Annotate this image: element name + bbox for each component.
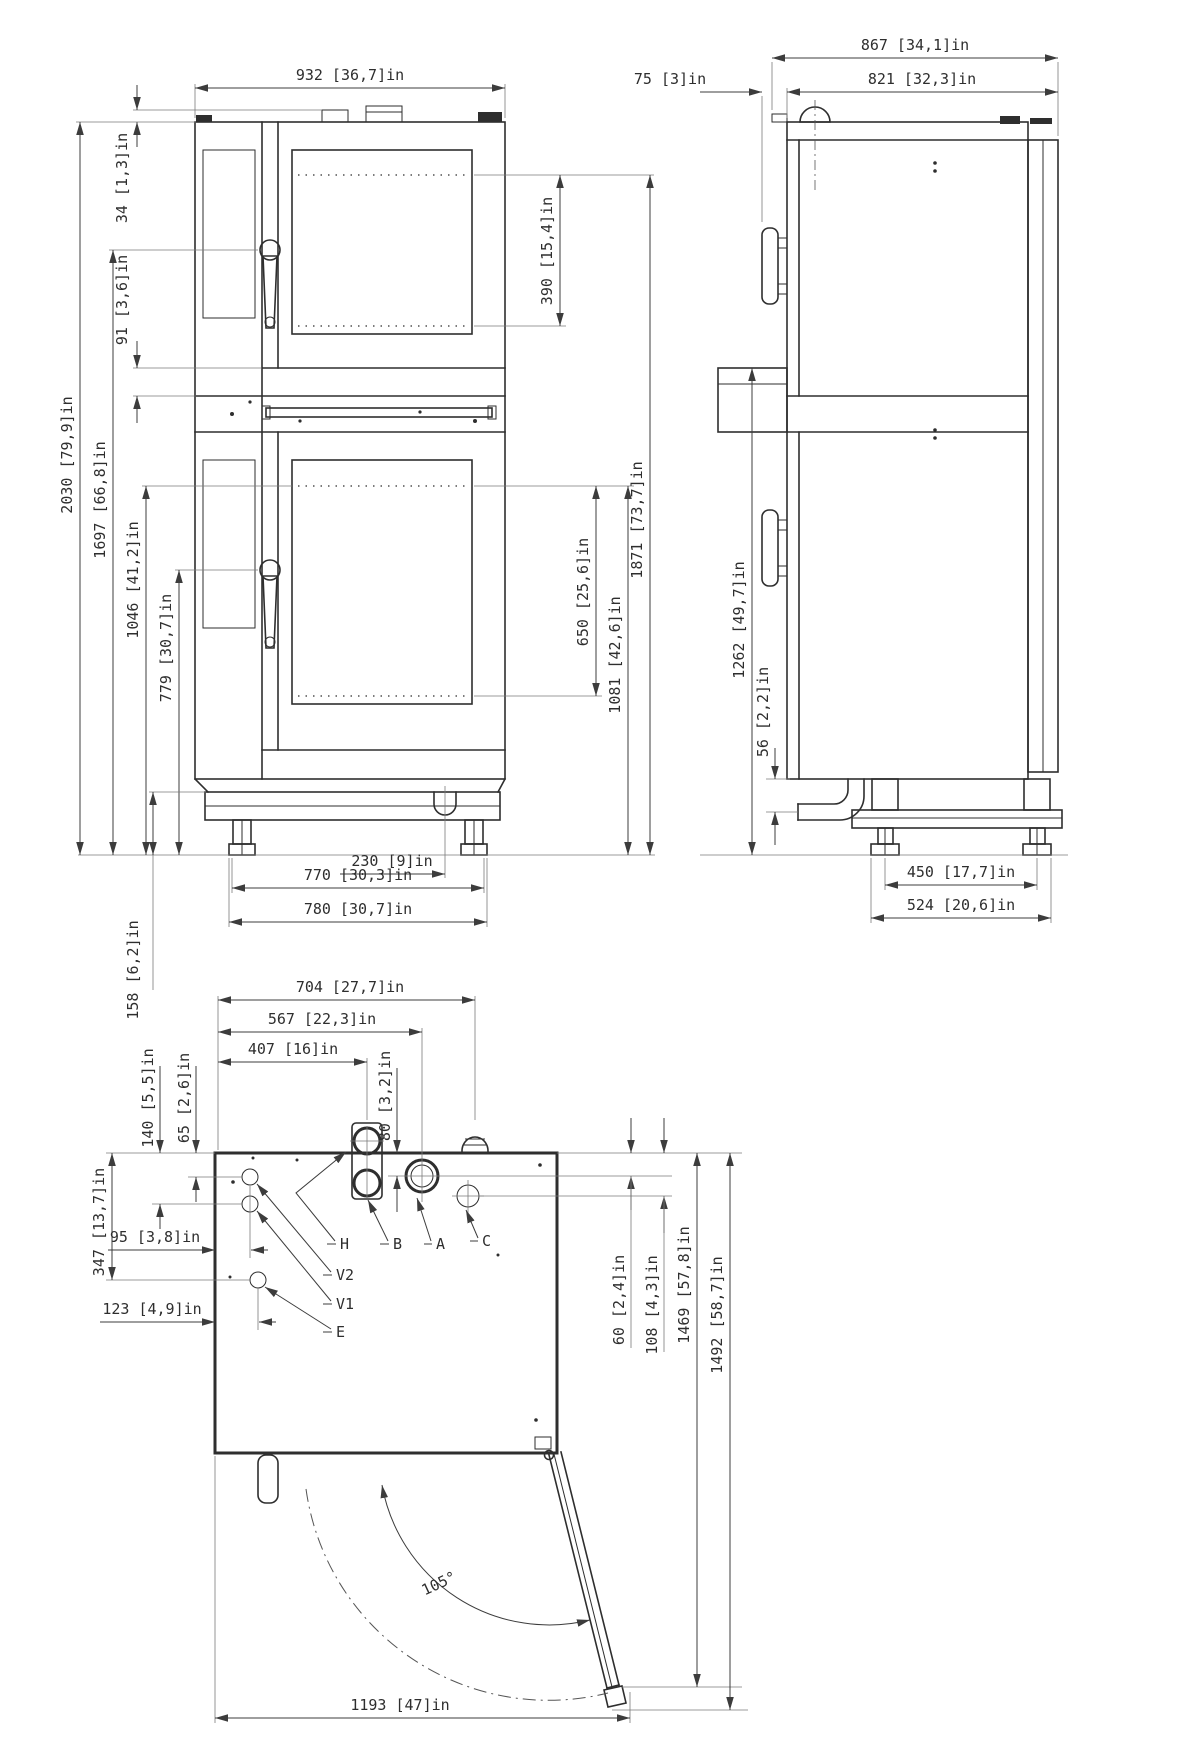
open-door-handle [604,1686,626,1707]
dim-front-1871: 1871 [73,7]in [628,175,650,855]
dim-label: 80 [3,2]in [376,1051,394,1141]
connection-label-V1: V1 [336,1295,354,1313]
dim-side-1262: 1262 [49,7]in [730,368,752,855]
dim-label: 779 [30,7]in [157,594,175,702]
dim-side-75: 75 [3]in [634,70,762,222]
dim-label: 1081 [42,6]in [606,596,624,713]
door-swing-arc [306,1489,608,1700]
connection-label-B: B [393,1235,402,1253]
dim-top-347: 347 [13,7]in [90,1153,112,1280]
upper-control-panel [203,150,255,318]
dim-label: 650 [25,6]in [574,538,592,646]
dim-side-450: 450 [17,7]in [885,858,1037,890]
dim-front-390: 390 [15,4]in [474,175,654,326]
dim-label: 1697 [66,8]in [91,441,109,558]
dim-label: 780 [30,7]in [304,900,412,918]
vent-dome [462,1137,488,1151]
dim-top-65: 65 [2,6]in [175,1053,196,1202]
dim-label: 770 [30,3]in [304,866,412,884]
connection-label-V2: V2 [336,1266,354,1284]
dim-top-140: 140 [5,5]in [139,1048,160,1229]
dim-label: 932 [36,7]in [296,66,404,84]
door-handle-top-view [258,1455,278,1503]
lower-door-window [292,460,472,704]
oven-dimension-drawing: 932 [36,7]in 34 [1,3]in 91 [3,6]in 2030 … [0,0,1200,1748]
connection-label-E: E [336,1323,345,1341]
dim-label: 65 [2,6]in [175,1053,193,1143]
dim-label: 123 [4,9]in [102,1300,201,1318]
upper-door-window [292,150,472,334]
open-door [549,1452,626,1707]
dim-top-108: 108 [4,3]in [643,1118,664,1355]
dim-label: 60 [2,4]in [610,1255,628,1345]
dim-label: 1193 [47]in [350,1696,449,1714]
side-beacon-vent [800,100,830,190]
top-view: 105° 704 [27,7]in 567 [22,3]in 407 [16]i… [90,978,748,1723]
dim-label: 704 [27,7]in [296,978,404,996]
side-view-body [772,114,1058,779]
dim-label: 407 [16]in [248,1040,338,1058]
dim-label: 56 [2,2]in [754,667,772,757]
dim-label: 1871 [73,7]in [628,461,646,578]
dim-label: 567 [22,3]in [268,1010,376,1028]
lower-control-panel [203,460,255,628]
dim-label: 450 [17,7]in [907,863,1015,881]
side-view: 867 [34,1]in 821 [32,3]in 75 [3]in 1262 … [634,36,1068,923]
front-base-stand [195,779,505,878]
connection-label-C: C [482,1232,491,1250]
side-base-stand [852,779,1062,855]
dim-top-1469: 1469 [57,8]in [622,1153,742,1687]
dim-front-779: 779 [30,7]in [157,570,258,855]
dim-top-704: 704 [27,7]in [218,978,475,1000]
dim-side-56: 56 [2,2]in [754,667,798,845]
dim-label: 2030 [79,9]in [58,396,76,513]
dim-top-123: 123 [4,9]in [100,1300,276,1322]
dim-top-60: 60 [2,4]in [610,1118,631,1348]
upper-handle-side [762,228,778,304]
lower-handle-side [762,510,778,586]
front-upper-oven [203,150,472,334]
side-door-handles [762,228,787,586]
front-view: 932 [36,7]in 34 [1,3]in 91 [3,6]in 2030 … [58,66,655,1020]
dim-front-158: 158 [6,2]in [124,792,206,1020]
dim-label: 91 [3,6]in [113,255,131,345]
dim-label: 34 [1,3]in [113,133,131,223]
dim-top-95: 95 [3,8]in [108,1228,268,1250]
connection-label-A: A [436,1235,445,1253]
front-lower-oven [203,460,472,704]
dim-label: 158 [6,2]in [124,920,142,1019]
drawing-sheet: 932 [36,7]in 34 [1,3]in 91 [3,6]in 2030 … [0,0,1200,1748]
front-view-body [195,106,505,779]
dim-label: 1262 [49,7]in [730,561,748,678]
dim-front-1046: 1046 [41,2]in [124,486,292,855]
front-stacking-kit [195,396,505,432]
dim-label: 108 [4,3]in [643,1255,661,1354]
vent-circles-V-E [242,1169,266,1288]
dim-label: 524 [20,6]in [907,896,1015,914]
dim-door-angle: 105° [382,1485,590,1625]
connection-V2-port [242,1169,258,1185]
dim-label: 140 [5,5]in [139,1048,157,1147]
side-drain-elbow [798,779,864,820]
dim-label: 347 [13,7]in [90,1168,108,1276]
dim-label: 1046 [41,2]in [124,521,142,638]
dim-front-91: 91 [3,6]in [113,255,262,423]
dim-front-1081: 1081 [42,6]in [606,486,628,855]
dim-label: 1492 [58,7]in [708,1256,726,1373]
connection-C-port [452,1180,484,1214]
dim-front-2030: 2030 [79,9]in [58,122,196,855]
dim-front-34: 34 [1,3]in [113,85,322,223]
connection-E-port [250,1272,266,1288]
connection-label-H: H [340,1235,349,1253]
dim-top-407: 407 [16]in [218,1040,367,1062]
dim-label: 95 [3,8]in [110,1228,200,1246]
dim-label: 1469 [57,8]in [675,1226,693,1343]
dim-label: 821 [32,3]in [868,70,976,88]
dim-label: 390 [15,4]in [538,197,556,305]
dim-label: 75 [3]in [634,70,706,88]
dim-side-821: 821 [32,3]in [787,70,1058,118]
dim-label: 867 [34,1]in [861,36,969,54]
connection-leaders: H B A C V2 V1 E [257,1152,491,1341]
dim-top-567: 567 [22,3]in [218,1010,422,1032]
top-view-body [215,1153,557,1453]
